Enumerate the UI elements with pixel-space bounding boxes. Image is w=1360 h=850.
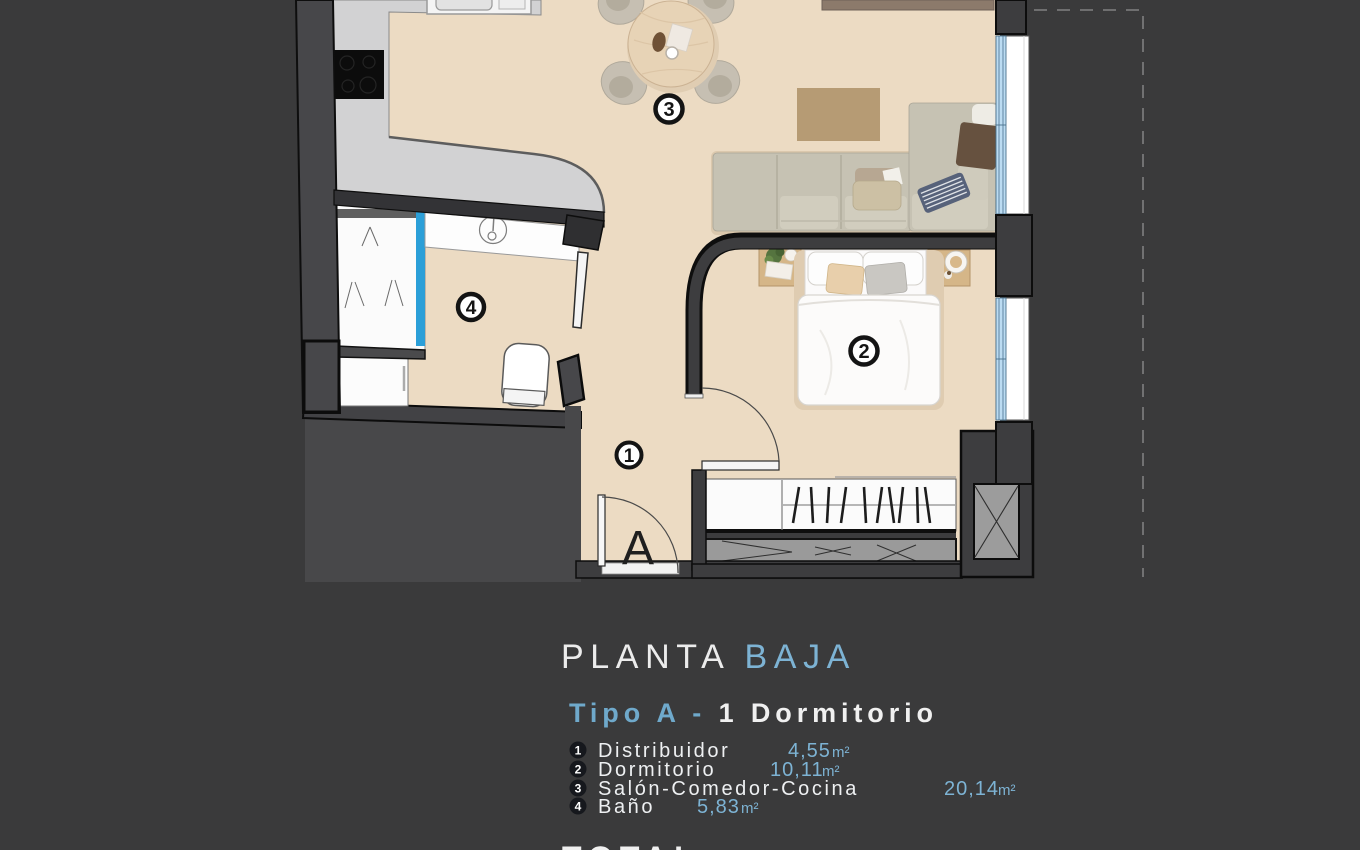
- svg-text:m²: m²: [832, 744, 850, 761]
- svg-text:5,83: 5,83: [697, 796, 740, 818]
- svg-text:3: 3: [575, 782, 582, 796]
- svg-text:Baño: Baño: [598, 796, 655, 818]
- svg-text:A: A: [622, 522, 654, 575]
- svg-text:1: 1: [624, 446, 635, 467]
- svg-text:1: 1: [575, 744, 582, 758]
- svg-text:4: 4: [466, 298, 477, 319]
- svg-text:4: 4: [575, 800, 582, 814]
- svg-text:m²: m²: [998, 782, 1016, 799]
- svg-text:Tipo A - 1 Dormitorio: Tipo A - 1 Dormitorio: [569, 698, 938, 728]
- svg-text:PLANTA BAJA: PLANTA BAJA: [561, 638, 856, 676]
- svg-text:m²: m²: [741, 800, 759, 817]
- svg-text:2: 2: [858, 341, 869, 363]
- svg-text:TOTAL: TOTAL: [562, 840, 701, 850]
- svg-text:2: 2: [575, 763, 582, 777]
- svg-text:20,14: 20,14: [944, 778, 999, 800]
- svg-text:3: 3: [663, 99, 674, 121]
